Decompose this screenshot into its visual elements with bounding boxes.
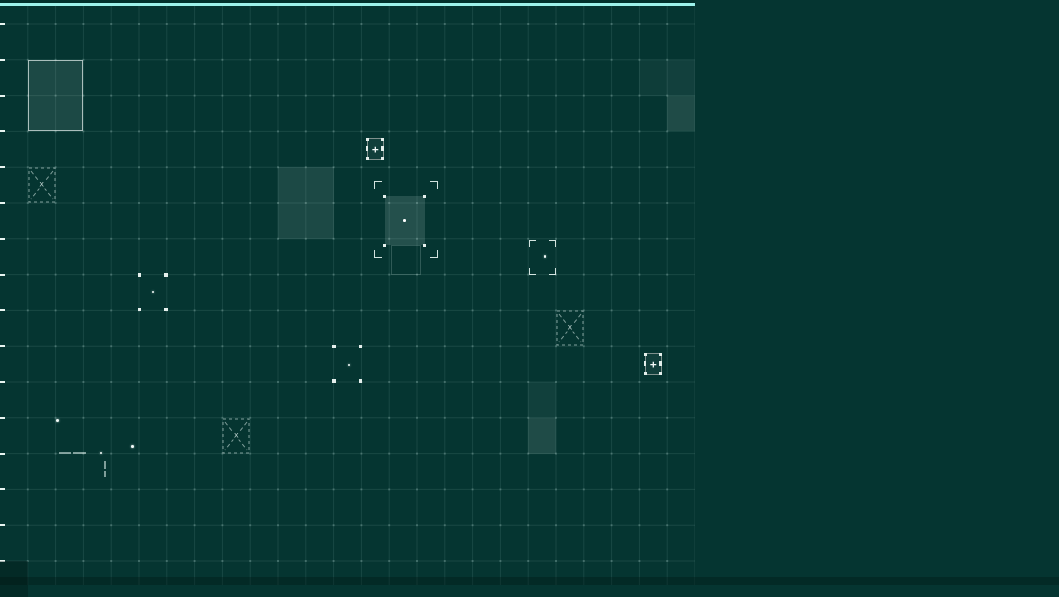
edge-handle (644, 361, 647, 366)
x-icon: x (38, 181, 45, 189)
center-dot (403, 219, 406, 222)
corner-handle (164, 308, 168, 312)
shaded-cell (528, 382, 556, 418)
unit-dot[interactable] (131, 445, 134, 448)
corner-handle (359, 345, 363, 349)
corner-handle (644, 353, 647, 356)
unit-dot[interactable] (100, 452, 102, 454)
corner-brackets-marker[interactable] (528, 239, 556, 275)
edge-handle (366, 146, 369, 151)
markers-layer: ++ x x x (0, 0, 1059, 585)
row-tick (0, 95, 5, 97)
shaded-cell (667, 96, 695, 132)
corner-handle (359, 379, 363, 383)
map-canvas[interactable]: ++ x x x (0, 0, 1059, 585)
corner-bracket (529, 268, 536, 275)
corner-handles-marker[interactable] (139, 275, 167, 311)
center-dot (348, 364, 351, 367)
x-icon: x (566, 324, 573, 332)
corner-handle (332, 345, 336, 349)
shaded-cell (278, 167, 334, 239)
corner-handle (659, 353, 662, 356)
selection-corner-bracket (430, 181, 438, 189)
row-tick (0, 345, 5, 347)
corner-handle (659, 372, 662, 375)
row-tick (0, 417, 5, 419)
highlighted-zone-rect (28, 60, 84, 132)
corner-handle (423, 195, 426, 198)
corner-handle (381, 157, 384, 160)
corner-handle (138, 308, 142, 312)
dash-mark (104, 461, 106, 469)
shaded-cell (667, 60, 695, 96)
corner-handle (383, 195, 386, 198)
corner-handle (366, 138, 369, 141)
edge-handle (381, 146, 384, 151)
row-tick (0, 309, 5, 311)
row-tick (0, 59, 5, 61)
dashed-x-marker[interactable]: x (222, 418, 250, 454)
corner-handles-marker[interactable] (334, 346, 362, 382)
corner-handle (366, 157, 369, 160)
selected-object[interactable] (385, 196, 425, 245)
row-tick (0, 23, 5, 25)
corner-handle (138, 273, 142, 277)
row-tick (0, 381, 5, 383)
bottom-edge-strip (0, 577, 1059, 585)
corner-bracket (549, 268, 556, 275)
corner-handle (383, 244, 386, 247)
corner-handle (644, 372, 647, 375)
selection-corner-bracket (374, 181, 382, 189)
corner-handle (423, 244, 426, 247)
dash-mark (104, 471, 106, 477)
plus-box-marker[interactable]: + (367, 138, 384, 160)
row-tick (0, 202, 5, 204)
dash-mark (73, 452, 86, 454)
corner-handle (164, 273, 168, 277)
x-icon: x (233, 431, 240, 439)
row-tick (0, 453, 5, 455)
shaded-cell (528, 418, 556, 454)
shaded-cell (639, 60, 667, 96)
selection-corner-bracket (430, 250, 438, 258)
dashed-x-marker[interactable]: x (28, 167, 56, 203)
plus-icon: + (372, 144, 379, 155)
plus-icon: + (650, 359, 657, 370)
dash-mark (59, 452, 71, 454)
unit-dot[interactable] (56, 419, 60, 423)
edge-handle (659, 361, 662, 366)
corner-handle (381, 138, 384, 141)
center-dot (152, 291, 155, 294)
row-tick (0, 524, 5, 526)
center-dot (544, 255, 547, 258)
row-tick (0, 488, 5, 490)
row-tick (0, 166, 5, 168)
corner-handle (332, 379, 336, 383)
corner-bracket (549, 240, 556, 247)
row-tick (0, 238, 5, 240)
row-tick (0, 274, 5, 276)
corner-bracket (529, 240, 536, 247)
row-tick (0, 130, 5, 132)
object-footprint (391, 245, 422, 275)
plus-box-marker[interactable]: + (645, 353, 662, 375)
dashed-x-marker[interactable]: x (556, 310, 584, 346)
selection-corner-bracket (374, 250, 382, 258)
